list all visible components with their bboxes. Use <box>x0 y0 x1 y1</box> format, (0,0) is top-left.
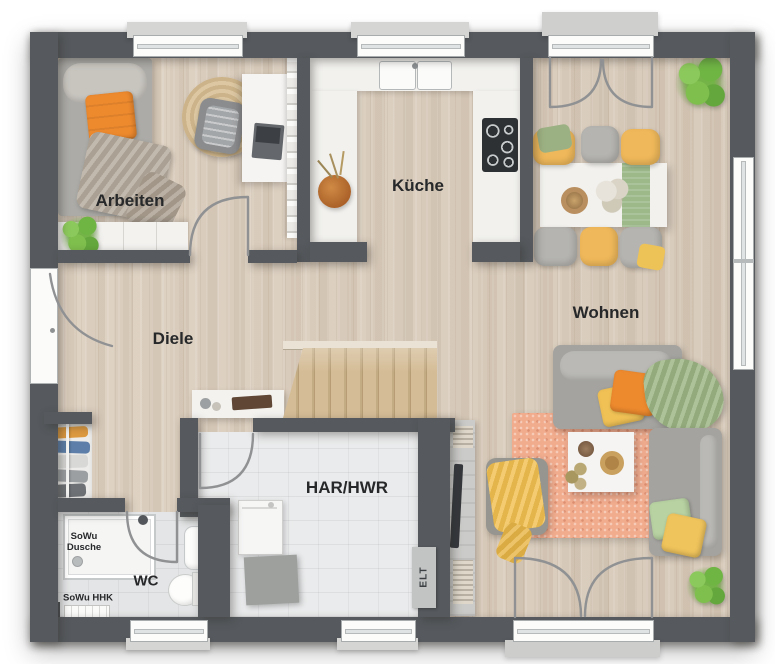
dining-chair-yellow <box>580 227 618 266</box>
electrical-label: ELT <box>419 566 430 587</box>
dryer-box <box>244 555 299 606</box>
dried-plant <box>560 455 594 495</box>
door-glass <box>517 629 650 634</box>
table-centerpiece-flowers <box>593 176 631 214</box>
wall-kitchen-left-jamb <box>310 242 367 262</box>
wall-arbeiten-south-stub <box>248 250 297 263</box>
sink-basin-left <box>379 61 416 90</box>
coat-dark <box>55 483 87 498</box>
wall-kitchen-right-jamb <box>472 242 520 262</box>
window-glass <box>741 161 746 366</box>
room-label-wc: WC <box>134 573 159 590</box>
shower-label-line1: SoWu <box>67 531 101 542</box>
wall-kitchen-right <box>520 58 533 262</box>
console-decor-tray <box>232 395 273 411</box>
laptop-screen <box>255 126 280 144</box>
wall-wc-east <box>198 505 230 617</box>
flower-vase <box>318 175 351 208</box>
washer-dial <box>268 502 274 508</box>
shower-head <box>138 515 148 525</box>
door-glass <box>552 44 650 49</box>
window-arbeiten <box>133 35 243 57</box>
console-decor-vase <box>200 398 211 409</box>
floor-plan: Arbeiten Küche Wohnen Diele HAR/HWR WC S… <box>0 0 775 664</box>
dining-chair-gray <box>534 227 577 266</box>
sink-basin-right <box>417 61 452 90</box>
shower-label-line2: Dusche <box>67 542 101 553</box>
heater-label: SoWu HHK <box>63 593 113 604</box>
room-label-wohnen: Wohnen <box>573 303 640 323</box>
yellow-throw <box>485 457 546 534</box>
shower-label: SoWu Dusche <box>67 531 101 553</box>
entrance-door <box>30 268 58 384</box>
cooktop <box>482 118 518 172</box>
room-label-kueche: Küche <box>392 176 444 196</box>
terrace-step <box>505 640 660 657</box>
window-glass <box>137 44 239 49</box>
wardrobe-rod <box>66 424 69 505</box>
wall-wardrobe-stub <box>44 412 92 424</box>
window-kueche <box>357 35 465 57</box>
house-plant-dining <box>672 52 730 114</box>
window-har <box>341 620 416 642</box>
wall-wc-north <box>58 498 125 512</box>
window-glass <box>134 629 204 634</box>
books-stack <box>453 426 473 448</box>
table-centerpiece-bowl <box>561 187 588 214</box>
yellow-cushion <box>660 512 707 558</box>
french-door-living <box>513 620 654 642</box>
staircase <box>283 348 437 418</box>
french-door-dining <box>548 35 654 57</box>
house-plant-living <box>684 563 729 610</box>
door-handle <box>50 328 55 333</box>
dining-chair-gray <box>581 126 619 163</box>
wall-arbeiten-south <box>58 250 190 263</box>
window-mullion <box>733 259 754 263</box>
books-stack <box>453 560 473 604</box>
window-wc <box>130 620 208 642</box>
window-glass <box>361 44 461 49</box>
room-label-arbeiten: Arbeiten <box>96 191 165 211</box>
dining-chair-yellow <box>621 129 660 165</box>
chair-cushion <box>201 104 240 148</box>
console-decor-vase <box>212 402 221 411</box>
shower-drain <box>72 556 83 567</box>
chair-cloth-yellow <box>636 243 666 271</box>
terrace-step <box>542 12 658 36</box>
tile-floor-har <box>198 432 418 617</box>
window-glass <box>345 629 412 634</box>
wall-kitchen-left <box>297 58 310 262</box>
table-bowl <box>600 451 624 475</box>
room-label-har-hwr: HAR/HWR <box>306 478 388 498</box>
faucet <box>412 63 418 69</box>
room-label-diele: Diele <box>153 329 194 349</box>
window-wohnen-east <box>733 157 754 370</box>
